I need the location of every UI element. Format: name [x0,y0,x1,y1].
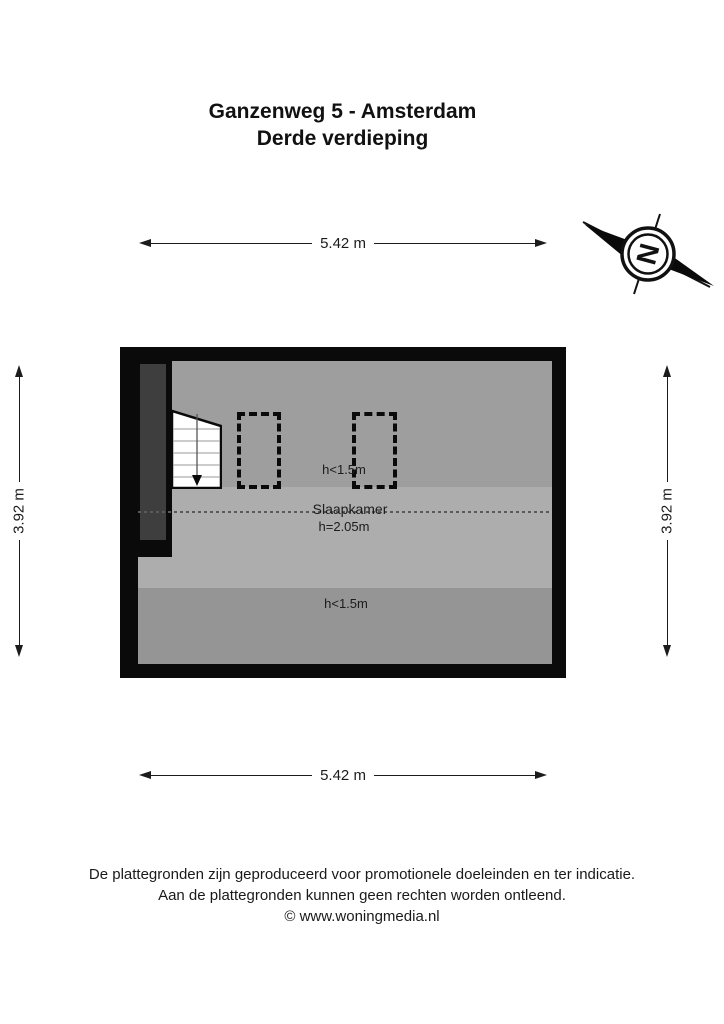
compass-north-icon: N [578,208,720,300]
dimension-line [19,540,20,645]
dimension-height-left-label: 3.92 m [11,482,27,540]
stairs-icon [172,409,222,489]
room-label: Slaapkamer [313,501,388,517]
roof-window-1 [237,412,281,489]
dimension-line [374,243,535,244]
ceiling-height-label-top: h<1.5m [322,462,366,477]
dimension-width-bottom-label: 5.42 m [312,767,374,784]
stairwell-shaft-wall [138,361,172,557]
ceiling-height-label-bottom: h<1.5m [324,596,368,611]
dimension-width-top: 5.42 m [139,235,547,251]
dimension-line [19,377,20,482]
dimension-width-bottom: 5.42 m [139,767,547,783]
dimension-width-top-label: 5.42 m [312,235,374,252]
stairwell-void [140,364,166,540]
arrow-left-icon [139,771,151,779]
dimension-line [374,775,535,776]
dimension-height-right-label: 3.92 m [659,482,675,540]
floorplan-page: Ganzenweg 5 - Amsterdam Derde verdieping… [0,0,724,1024]
disclaimer: De plattegronden zijn geproduceerd voor … [0,864,724,927]
arrow-left-icon [139,239,151,247]
dimension-line [151,243,312,244]
dimension-height-right: 3.92 m [659,365,675,657]
arrow-down-icon [663,645,671,657]
ceiling-height-label-middle: h=2.05m [319,519,370,534]
floor-plan: h<1.5m Slaapkamer h=2.05m h<1.5m [120,347,566,678]
roof-window-2 [352,412,397,489]
dimension-line [667,377,668,482]
title-floor-name: Derde verdieping [0,125,685,152]
disclaimer-line-2: Aan de plattegronden kunnen geen rechten… [0,885,724,906]
disclaimer-line-1: De plattegronden zijn geproduceerd voor … [0,864,724,885]
dimension-line [151,775,312,776]
arrow-down-icon [15,645,23,657]
arrow-up-icon [15,365,23,377]
page-title: Ganzenweg 5 - Amsterdam Derde verdieping [0,98,685,152]
copyright-line: © www.woningmedia.nl [0,906,724,927]
floor-area: h<1.5m Slaapkamer h=2.05m h<1.5m [138,361,552,664]
arrow-right-icon [535,771,547,779]
dimension-line [667,540,668,645]
dimension-height-left: 3.92 m [11,365,27,657]
title-address: Ganzenweg 5 - Amsterdam [0,98,685,125]
arrow-right-icon [535,239,547,247]
arrow-up-icon [663,365,671,377]
